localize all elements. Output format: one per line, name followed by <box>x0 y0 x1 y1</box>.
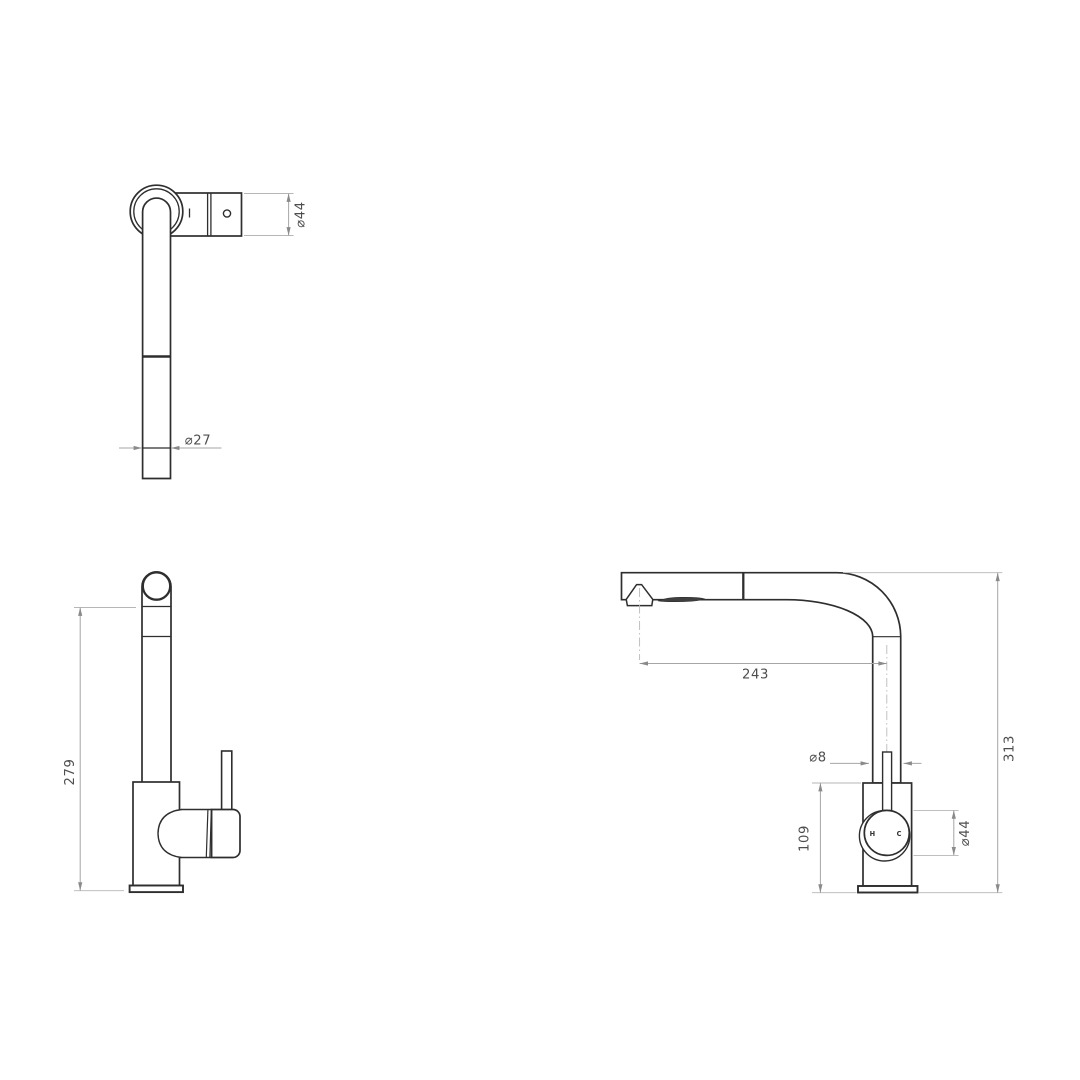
front-handle-lever <box>222 751 232 810</box>
front-spout-column <box>142 572 171 782</box>
dimension-label: ⌀44 <box>958 820 973 847</box>
dimension-label: 313 <box>1003 735 1018 762</box>
side-base-flange <box>858 886 918 893</box>
dim-height-279: 279 <box>63 608 136 891</box>
dim-diameter-44-side: ⌀44 <box>914 810 973 855</box>
front-handle-joint-line <box>206 810 208 857</box>
side-hose-rod <box>883 752 892 811</box>
top-spout-tube <box>143 198 171 478</box>
dimension-label: 279 <box>63 759 78 786</box>
front-handle-base <box>212 810 240 858</box>
dimension-label: 109 <box>798 825 813 852</box>
front-spout-outlet-circle <box>143 572 170 599</box>
dimension-label: ⌀27 <box>185 434 212 449</box>
top-view: ⌀44 ⌀27 <box>119 185 309 478</box>
faucet-dimension-drawing: ⌀44 ⌀27 279 <box>0 0 1080 1080</box>
dimension-label: 243 <box>742 668 769 683</box>
dimension-label: ⌀8 <box>809 751 827 766</box>
drawing-canvas: ⌀44 ⌀27 279 <box>0 0 1080 1080</box>
dim-diameter-8: ⌀8 <box>809 751 921 766</box>
side-view: H C 243 ⌀8 109 ⌀44 <box>622 573 1018 893</box>
dim-height-109: 109 <box>798 783 862 893</box>
front-view: 279 <box>63 572 240 892</box>
dim-reach-243: 243 <box>640 664 887 683</box>
cold-label: C <box>897 830 902 838</box>
dimension-label: ⌀44 <box>294 201 309 228</box>
hot-label: H <box>870 830 876 838</box>
front-base-flange <box>130 886 183 893</box>
dim-diameter-44-top: ⌀44 <box>244 194 309 236</box>
